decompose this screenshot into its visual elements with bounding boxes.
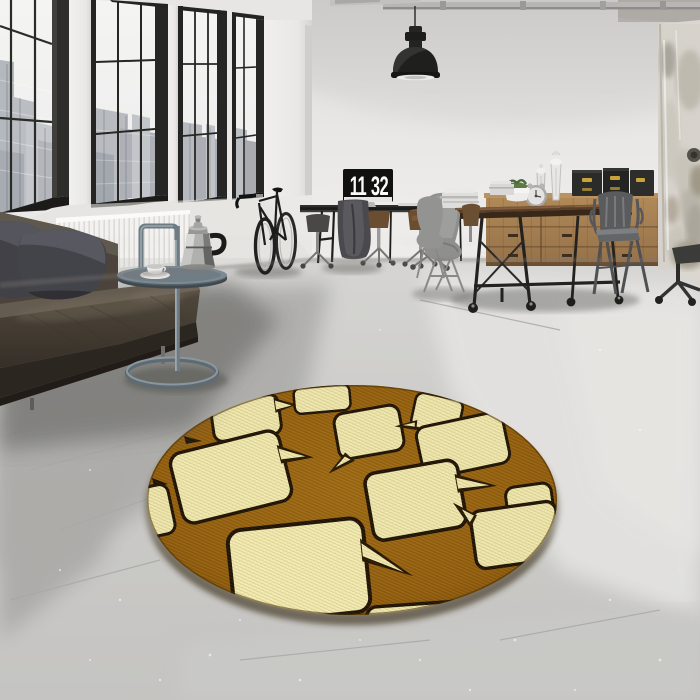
- svg-text:11: 11: [350, 171, 367, 201]
- svg-text:32: 32: [371, 171, 389, 201]
